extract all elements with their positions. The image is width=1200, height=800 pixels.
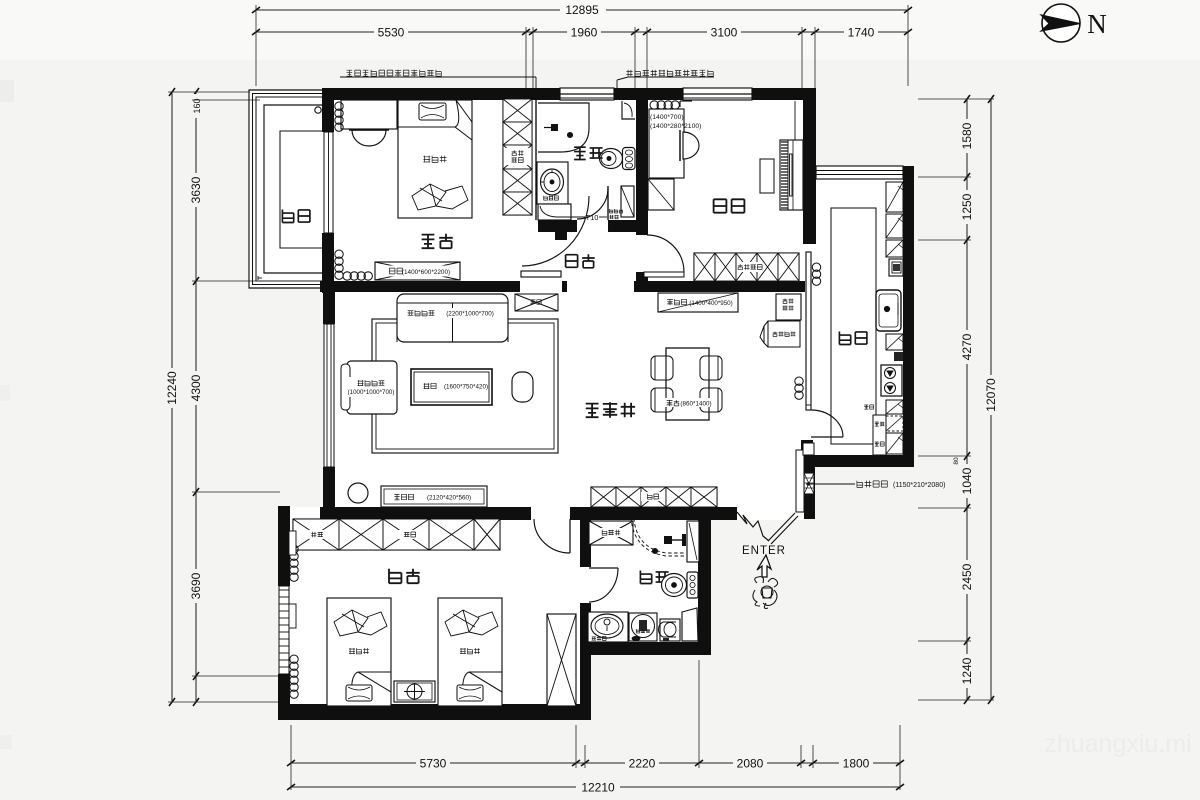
svg-text:3100: 3100 bbox=[711, 26, 738, 40]
svg-text:(1400*400*950): (1400*400*950) bbox=[689, 300, 732, 307]
svg-text:12240: 12240 bbox=[165, 371, 179, 405]
svg-text:N: N bbox=[1087, 9, 1107, 39]
svg-text:(860*1400): (860*1400) bbox=[680, 401, 711, 408]
svg-text:5530: 5530 bbox=[378, 26, 405, 40]
svg-text:12210: 12210 bbox=[581, 781, 615, 795]
svg-text:1580: 1580 bbox=[960, 122, 974, 149]
svg-text:4270: 4270 bbox=[960, 333, 974, 360]
svg-text:(1150*210*2080): (1150*210*2080) bbox=[893, 482, 945, 489]
svg-text:160: 160 bbox=[192, 98, 202, 113]
svg-text:2080: 2080 bbox=[737, 757, 764, 771]
svg-text:1240: 1240 bbox=[960, 657, 974, 684]
svg-text:(1400*280*2100): (1400*280*2100) bbox=[650, 123, 701, 130]
svg-text:1740: 1740 bbox=[848, 26, 875, 40]
svg-text:(1600*750*420): (1600*750*420) bbox=[444, 384, 488, 391]
svg-text:(1400*700): (1400*700) bbox=[650, 114, 684, 121]
svg-text:1800: 1800 bbox=[843, 757, 870, 771]
svg-text:2450: 2450 bbox=[960, 563, 974, 590]
svg-text:zhuangxiu.mi: zhuangxiu.mi bbox=[1044, 730, 1191, 758]
svg-text:12070: 12070 bbox=[984, 378, 998, 412]
svg-text:1250: 1250 bbox=[960, 193, 974, 220]
svg-text:(1000*1000*700): (1000*1000*700) bbox=[348, 389, 395, 396]
svg-text:(1400*600*2200): (1400*600*2200) bbox=[402, 269, 450, 276]
svg-text:5730: 5730 bbox=[420, 757, 447, 771]
svg-text:80: 80 bbox=[953, 457, 960, 465]
svg-text:3690: 3690 bbox=[189, 572, 203, 599]
svg-text:1040: 1040 bbox=[960, 467, 974, 494]
svg-text:(2120*420*560): (2120*420*560) bbox=[427, 495, 471, 502]
svg-text:3630: 3630 bbox=[189, 176, 203, 203]
svg-text:2220: 2220 bbox=[629, 757, 656, 771]
svg-text:(2200*1000*700): (2200*1000*700) bbox=[446, 311, 494, 318]
svg-text:T10: T10 bbox=[586, 213, 599, 222]
svg-text:ENTER: ENTER bbox=[742, 545, 786, 557]
svg-text:12895: 12895 bbox=[565, 3, 599, 17]
svg-text:1960: 1960 bbox=[571, 26, 598, 40]
svg-text:4300: 4300 bbox=[189, 374, 203, 401]
